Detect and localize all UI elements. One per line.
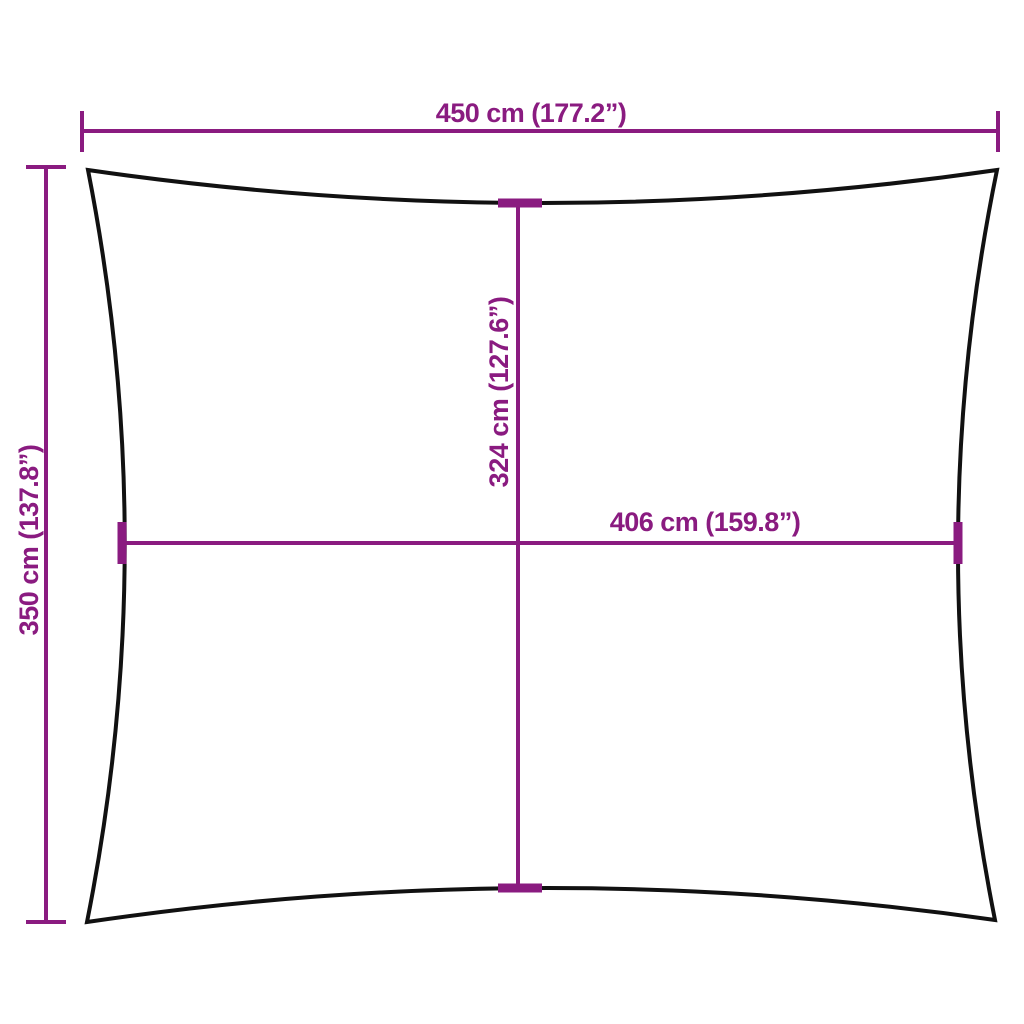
diagram-canvas: 450 cm (177.2”) 350 cm (137.8”) 324 cm (… — [0, 0, 1024, 1024]
dimension-diagram: 450 cm (177.2”) 350 cm (137.8”) 324 cm (… — [0, 0, 1024, 1024]
sail-outline — [87, 170, 997, 922]
dimension-label-top-width: 450 cm (177.2”) — [436, 98, 627, 128]
dimension-label-left-height: 350 cm (137.8”) — [14, 445, 44, 636]
dimension-left-height: 350 cm (137.8”) — [14, 167, 66, 922]
dimension-label-inner-height: 324 cm (127.6”) — [484, 297, 514, 488]
dimension-top-width: 450 cm (177.2”) — [82, 98, 998, 152]
dimension-label-inner-width: 406 cm (159.8”) — [610, 507, 801, 537]
